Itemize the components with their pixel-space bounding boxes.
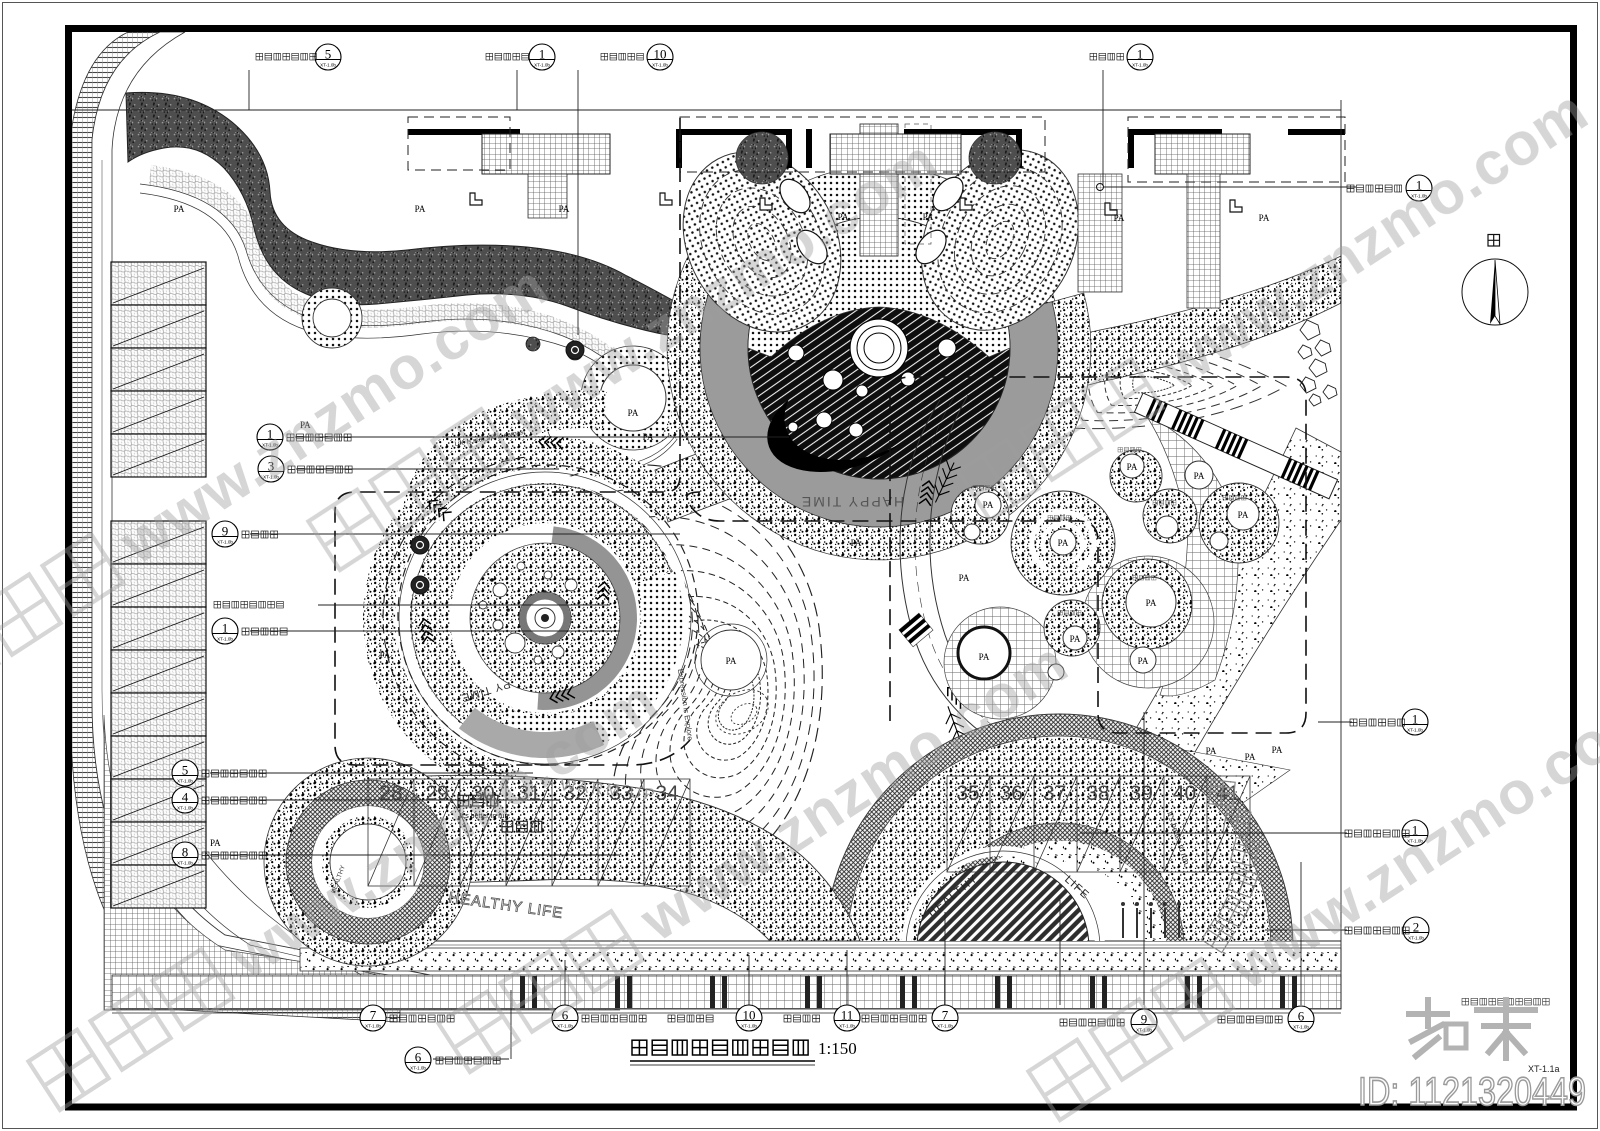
svg-text:PA: PA <box>1245 752 1256 762</box>
svg-text:XT-1.0b: XT-1.0b <box>1293 1025 1309 1030</box>
svg-text:PA: PA <box>1058 538 1069 548</box>
svg-text:XT-1.0b: XT-1.0b <box>534 63 550 68</box>
svg-text:PA: PA <box>1272 745 1283 755</box>
svg-text:PA: PA <box>1127 462 1138 472</box>
svg-text:8: 8 <box>182 845 189 860</box>
svg-text:PA: PA <box>210 838 221 848</box>
svg-text:XT-1.0b: XT-1.0b <box>557 1024 573 1029</box>
svg-text:5: 5 <box>182 763 189 778</box>
svg-text:XT-1.0b: XT-1.0b <box>1408 936 1424 941</box>
svg-text:PA: PA <box>979 652 990 662</box>
svg-text:5: 5 <box>325 47 332 62</box>
svg-text:XT-1.0b: XT-1.0b <box>177 806 193 811</box>
svg-text:6: 6 <box>415 1050 422 1065</box>
svg-text:38: 38 <box>1086 782 1109 805</box>
svg-text:PA: PA <box>1194 471 1205 481</box>
svg-text:1: 1 <box>222 621 229 636</box>
svg-text:PA: PA <box>1259 213 1270 223</box>
svg-text:6: 6 <box>1298 1009 1305 1024</box>
svg-text:1: 1 <box>1412 712 1419 727</box>
svg-text:34: 34 <box>655 782 679 805</box>
svg-text:XT-1.0b: XT-1.0b <box>741 1024 757 1029</box>
svg-text:PA: PA <box>959 573 970 583</box>
svg-text:1:150: 1:150 <box>818 1039 857 1058</box>
svg-text:XT-1.0b: XT-1.0b <box>1132 63 1148 68</box>
svg-text:XT-1.0b: XT-1.0b <box>410 1066 426 1071</box>
svg-text:PA: PA <box>851 538 862 548</box>
svg-text:28: 28 <box>379 782 402 805</box>
svg-text:PA: PA <box>643 432 654 442</box>
svg-text:XT-1.0b: XT-1.0b <box>217 540 233 545</box>
svg-text:11: 11 <box>841 1008 854 1023</box>
svg-text:XT-1.0b: XT-1.0b <box>365 1024 381 1029</box>
svg-text:PA: PA <box>628 408 639 418</box>
svg-text:PA: PA <box>174 204 185 214</box>
svg-text:10: 10 <box>743 1008 756 1023</box>
svg-text:PA: PA <box>1138 656 1149 666</box>
svg-text:XT-1.0b: XT-1.0b <box>177 861 193 866</box>
svg-text:PA: PA <box>923 212 934 222</box>
svg-text:1: 1 <box>539 47 546 62</box>
svg-text:10: 10 <box>654 47 667 62</box>
svg-text:XT-1.0b: XT-1.0b <box>177 779 193 784</box>
svg-text:XT-1.0b: XT-1.0b <box>217 637 233 642</box>
svg-text:PA: PA <box>1206 746 1217 756</box>
svg-text:36: 36 <box>1000 782 1023 805</box>
svg-text:ID: 1121320449: ID: 1121320449 <box>1358 1070 1586 1114</box>
svg-text:7: 7 <box>942 1008 949 1023</box>
svg-text:PA: PA <box>726 656 737 666</box>
svg-text:HAPPY TIME: HAPPY TIME <box>800 494 904 510</box>
svg-text:39: 39 <box>1130 782 1153 805</box>
svg-text:XT-1.0b: XT-1.0b <box>1407 728 1423 733</box>
svg-text:XT-1.0b: XT-1.0b <box>839 1024 855 1029</box>
svg-text:PA: PA <box>1114 213 1125 223</box>
svg-text:XT-1.0b: XT-1.0b <box>652 63 668 68</box>
svg-text:XT-1.0b: XT-1.0b <box>320 63 336 68</box>
svg-text:35: 35 <box>956 782 979 805</box>
svg-text:37: 37 <box>1043 782 1066 805</box>
svg-text:PA: PA <box>380 650 391 660</box>
svg-text:PA: PA <box>1238 510 1249 520</box>
svg-text:1: 1 <box>1137 47 1144 62</box>
svg-text:XT-1.0b: XT-1.0b <box>937 1024 953 1029</box>
svg-text:PA: PA <box>415 204 426 214</box>
svg-text:40: 40 <box>1173 782 1196 805</box>
svg-text:2: 2 <box>1413 920 1420 935</box>
svg-text:PA: PA <box>559 204 570 214</box>
svg-text:7: 7 <box>370 1008 377 1023</box>
svg-text:PA: PA <box>1146 598 1157 608</box>
svg-text:4: 4 <box>182 790 189 805</box>
svg-text:PA: PA <box>1070 634 1081 644</box>
